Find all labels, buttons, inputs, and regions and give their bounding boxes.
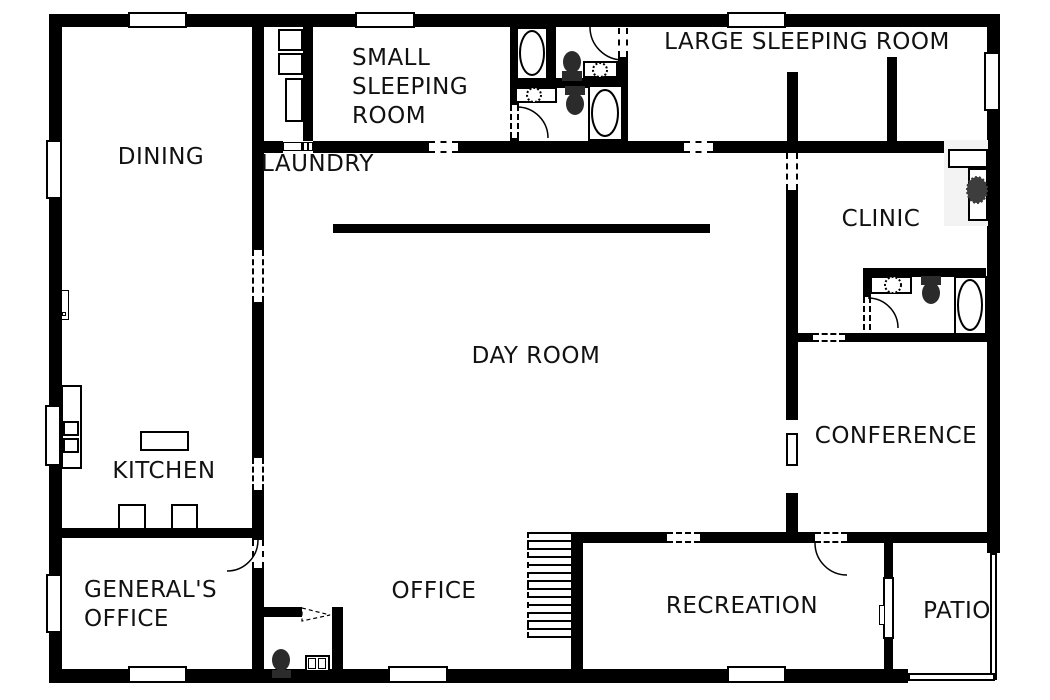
bathtub-icon (517, 28, 547, 79)
dryer-icon (278, 53, 303, 75)
room-label-text: OFFICE (392, 578, 477, 604)
room-label-patio: PATIO (923, 597, 991, 626)
toilet-icon (921, 276, 941, 304)
window-bottom-office (388, 666, 448, 683)
room-label-text: OFFICE (84, 605, 217, 634)
wall-conference-west-upper (786, 342, 798, 420)
wall-clinic-bath-west-stub (863, 268, 871, 297)
dayroom-partition-bar (333, 224, 710, 233)
wall-conference-west-lower (786, 493, 798, 532)
desk-icon (948, 149, 988, 168)
wall-bathrooms-middle (510, 78, 628, 88)
door-opening-clinic-entry (786, 153, 798, 190)
door-opening-clinic-bath (863, 297, 871, 330)
stool-icon (118, 504, 146, 530)
room-label-text: LARGE SLEEPING ROOM (664, 29, 950, 55)
toilet-icon (562, 51, 582, 81)
room-label-office: OFFICE (392, 577, 477, 606)
wall-clinic-west (786, 190, 798, 333)
wall-bathrooms-east-lower (618, 57, 628, 141)
kitchen-island-icon (140, 431, 189, 451)
window-left-kitchen (45, 405, 61, 466)
door-arc-icon (815, 543, 847, 575)
door-opening-recreation-west (667, 532, 700, 543)
room-label-clinic: CLINIC (842, 205, 921, 234)
patio-railing-east (990, 553, 997, 680)
window-top-large-sleeping (727, 12, 786, 28)
wall-bathrooms-south (510, 141, 628, 153)
door-opening-conference-south (815, 532, 847, 543)
wall-bathrooms-west-upper (510, 27, 519, 105)
window-bottom-recreation (727, 666, 786, 683)
room-label-day-room: DAY ROOM (472, 342, 601, 371)
door-opening-small-sleeping (429, 141, 458, 153)
stove-burner-icon (63, 438, 79, 453)
wall-office-bath-north (252, 607, 302, 617)
door-arc-icon (517, 107, 548, 138)
wall-recreation-north-c (847, 532, 1000, 543)
room-label-text: KITCHEN (112, 458, 215, 484)
wall-stairwell-east (571, 532, 583, 683)
room-label-generals-office: GENERAL'S OFFICE (84, 576, 217, 634)
stove-burner-icon (63, 421, 79, 436)
door-wedge-icon (302, 608, 330, 621)
wall-tub-divider (547, 27, 556, 82)
wall-recreation-north-a (571, 532, 667, 543)
wall-large-sleeping-south-a (628, 141, 684, 153)
room-label-text: PATIO (923, 598, 991, 624)
patio-railing-south (908, 673, 995, 681)
window-top-dining (128, 12, 187, 28)
door-opening-dining (252, 250, 264, 302)
wall-clinic-bath-north (863, 268, 986, 277)
room-label-small-sleeping: SMALL SLEEPING ROOM (352, 44, 468, 131)
wall-kitchen-south (62, 528, 264, 538)
laundry-cabinet-icon (285, 78, 303, 122)
room-label-text: DAY ROOM (472, 343, 601, 369)
wall-dining-east-mid (252, 302, 264, 458)
room-label-text: SMALL (352, 44, 468, 73)
room-label-text: SLEEPING (352, 73, 468, 102)
door-arc-icon (868, 298, 898, 328)
door-opening-bathroom-lower (510, 105, 519, 138)
wall-bathrooms-west-lower (510, 138, 519, 153)
room-label-large-sleeping: LARGE SLEEPING ROOM (664, 28, 950, 57)
floor-plan: DINING LAUNDRY SMALL SLEEPING ROOM LARGE… (0, 0, 1050, 700)
patio-door-handle (879, 605, 885, 625)
room-label-dining: DINING (118, 143, 205, 172)
door-opening-large-sleeping (684, 141, 713, 153)
door-opening-generals-office (252, 540, 264, 568)
room-label-text: CLINIC (842, 206, 921, 232)
toilet-icon (565, 86, 585, 115)
wall-recreation-north-b (700, 532, 815, 543)
desk-icon (968, 168, 988, 221)
stairs-icon (527, 532, 571, 638)
wall-large-sleeping-partition-2 (887, 57, 897, 141)
window-left-generals-office (46, 574, 62, 633)
wall-dining-east-upper (252, 27, 264, 250)
wall-generals-office-east (252, 568, 264, 683)
cabinet-door-icon (308, 658, 316, 669)
room-label-conference: CONFERENCE (815, 422, 977, 451)
stool-icon (171, 504, 198, 530)
door-opening-bathroom-upper (618, 28, 628, 57)
washer-icon (278, 29, 303, 51)
room-label-laundry: LAUNDRY (261, 150, 374, 179)
room-label-recreation: RECREATION (666, 592, 818, 621)
wall-office-bath-east (332, 607, 343, 683)
cabinet-door-icon (318, 658, 326, 669)
wall-dayroom-north-c (458, 141, 510, 153)
wall-clinic-south-a (786, 333, 813, 342)
wall-large-sleeping-partition-1 (787, 72, 798, 141)
room-label-text: DINING (118, 144, 205, 170)
room-label-text: CONFERENCE (815, 423, 977, 449)
room-label-text: LAUNDRY (261, 151, 374, 177)
window-left-dining (46, 140, 62, 199)
room-label-text: ROOM (352, 102, 468, 131)
room-label-text: GENERAL'S (84, 576, 217, 605)
sink-icon (516, 88, 556, 102)
door-opening-clinic-south (813, 333, 845, 342)
window-right-large-sleeping (984, 52, 1000, 111)
wall-patio-west-upper (884, 543, 893, 577)
exterior-wall-top (49, 14, 1000, 27)
room-label-text: RECREATION (666, 593, 818, 619)
window-top-small-sleeping (355, 12, 415, 28)
wall-clinic-south-b (845, 333, 1000, 342)
door-opening-kitchen (252, 458, 264, 490)
bathtub-icon (955, 277, 986, 334)
wall-laundry-east (303, 27, 313, 141)
room-label-kitchen: KITCHEN (112, 457, 215, 486)
sink-icon (584, 62, 617, 77)
wall-patio-west-lower (884, 639, 893, 672)
sink-icon (871, 277, 911, 293)
wall-panel-button-icon (62, 312, 66, 316)
window-bottom-generals-office (128, 666, 187, 683)
conference-door-leaf (786, 433, 798, 466)
